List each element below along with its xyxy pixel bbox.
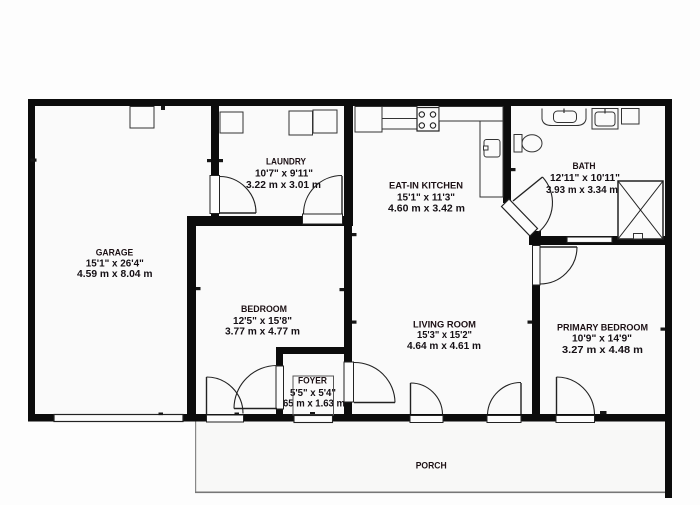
- svg-text:15'3" x 15'2": 15'3" x 15'2": [417, 330, 472, 341]
- svg-text:EAT-IN KITCHEN: EAT-IN KITCHEN: [389, 180, 463, 191]
- svg-text:PORCH: PORCH: [416, 461, 447, 472]
- svg-text:3.93 m x 3.34 m: 3.93 m x 3.34 m: [546, 185, 618, 196]
- svg-text:3.22 m x 3.01 m: 3.22 m x 3.01 m: [246, 180, 321, 191]
- svg-text:12'11" x 10'11": 12'11" x 10'11": [550, 173, 620, 184]
- svg-text:4.60 m x 3.42 m: 4.60 m x 3.42 m: [388, 203, 465, 214]
- svg-text:15'1" x 11'3": 15'1" x 11'3": [397, 192, 455, 203]
- svg-text:GARAGE: GARAGE: [96, 248, 134, 259]
- svg-text:PRIMARY BEDROOM: PRIMARY BEDROOM: [557, 322, 648, 333]
- svg-text:3.77 m x 4.77 m: 3.77 m x 4.77 m: [225, 326, 300, 337]
- svg-text:BEDROOM: BEDROOM: [241, 304, 287, 315]
- svg-text:10'9" x 14'9": 10'9" x 14'9": [572, 333, 632, 344]
- svg-text:4.64 m x 4.61 m: 4.64 m x 4.61 m: [407, 341, 481, 352]
- svg-text:BATH: BATH: [573, 161, 596, 172]
- svg-text:LAUNDRY: LAUNDRY: [266, 156, 307, 167]
- svg-text:LIVING ROOM: LIVING ROOM: [413, 319, 476, 330]
- svg-text:15'1" x 26'4": 15'1" x 26'4": [86, 259, 144, 270]
- svg-text:5'5" x 5'4": 5'5" x 5'4": [290, 388, 336, 399]
- svg-text:10'7" x 9'11": 10'7" x 9'11": [255, 169, 313, 180]
- svg-text:FOYER: FOYER: [298, 376, 327, 387]
- svg-text:4.59 m x 8.04 m: 4.59 m x 8.04 m: [77, 269, 153, 280]
- svg-text:1.65 m x 1.63 m: 1.65 m x 1.63 m: [275, 398, 345, 409]
- svg-text:3.27 m x 4.48 m: 3.27 m x 4.48 m: [562, 345, 643, 356]
